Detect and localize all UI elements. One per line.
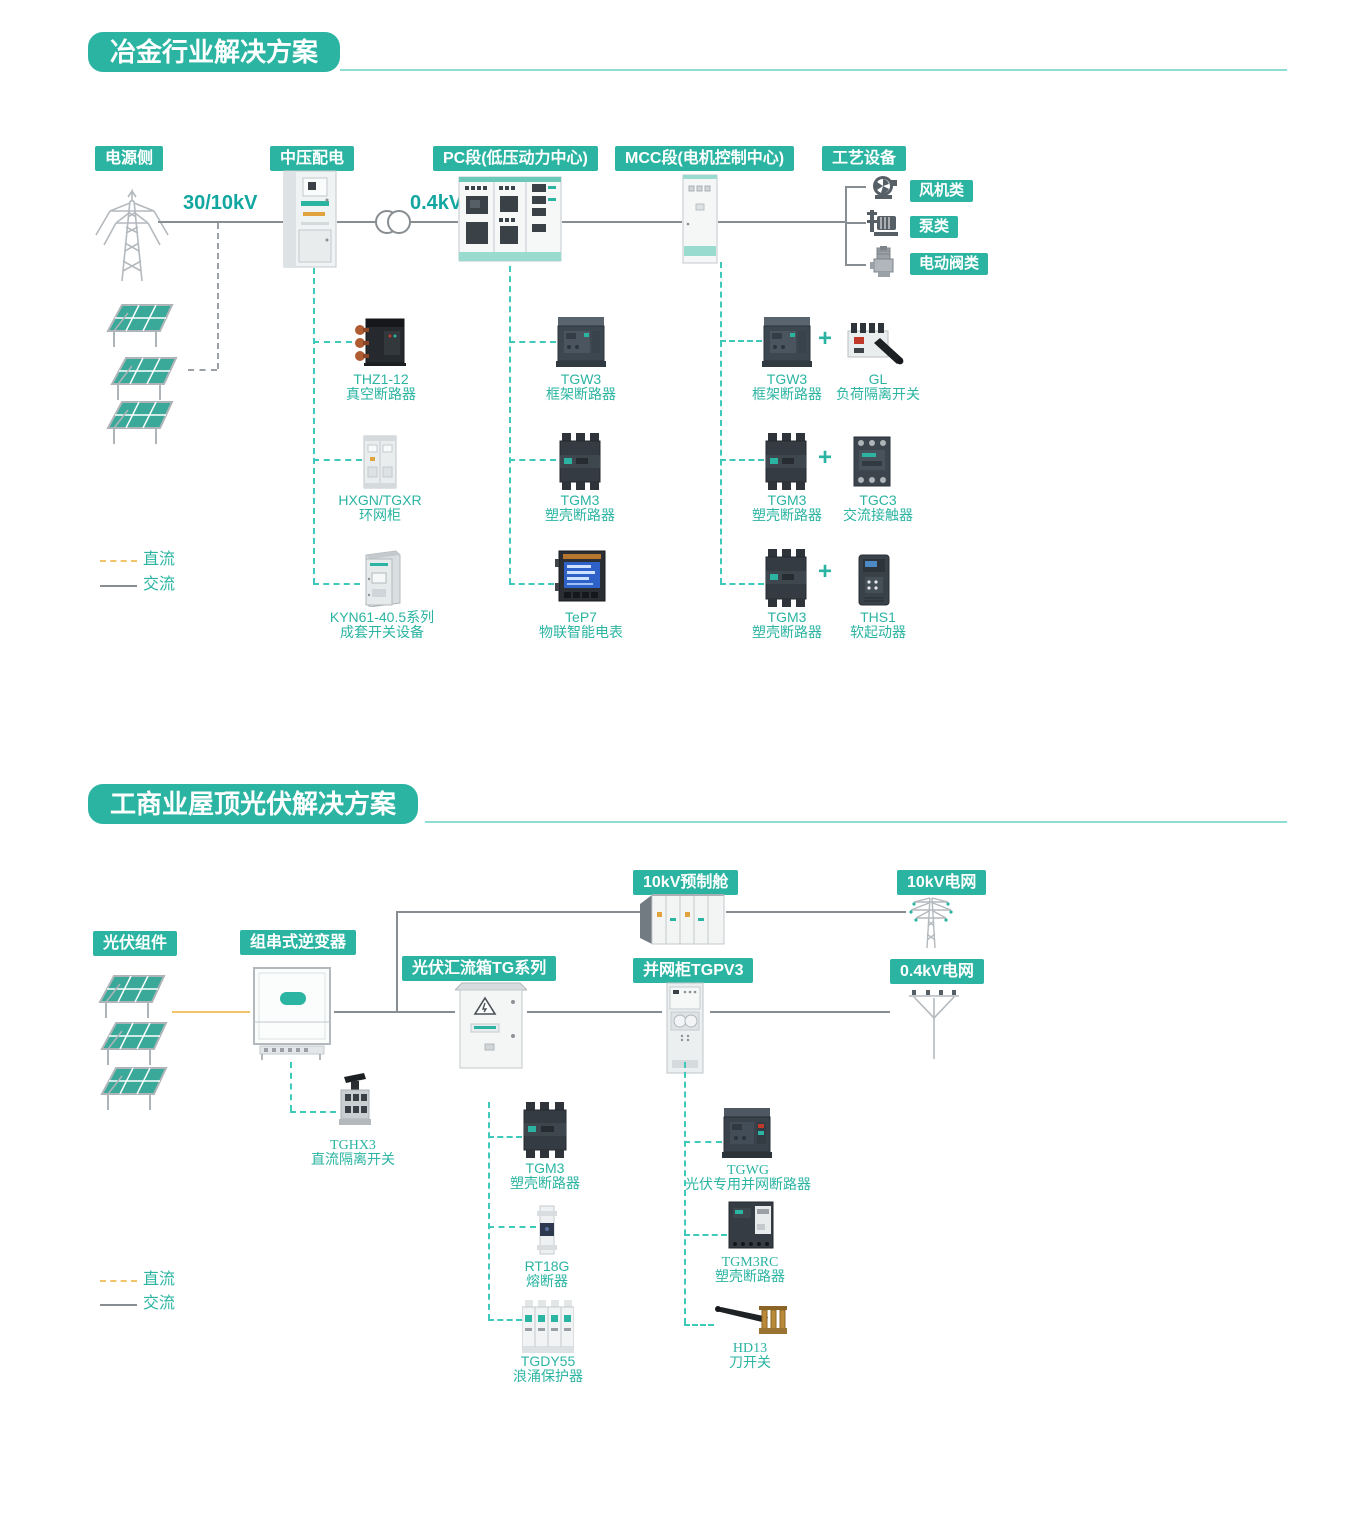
mv-branch-2 bbox=[313, 459, 362, 461]
solar-panel-icon bbox=[106, 303, 178, 349]
grid-cabinet-branch-3 bbox=[684, 1324, 714, 1326]
product-image-tgw3 bbox=[556, 317, 606, 367]
product-desc: 软起动器 bbox=[803, 625, 953, 640]
product-model: HXGN/TGXR bbox=[305, 493, 455, 508]
inverter-product-trunk bbox=[290, 1062, 292, 1111]
product-desc: 刀开关 bbox=[675, 1356, 825, 1371]
product-model: RT18G bbox=[472, 1259, 622, 1274]
mv-products-trunk bbox=[313, 268, 315, 584]
grid-cabinet-branch-2 bbox=[684, 1234, 727, 1236]
product-image-gl bbox=[846, 321, 904, 367]
voltage-low: 0.4kV bbox=[410, 192, 462, 215]
pc-branch-1 bbox=[509, 341, 556, 343]
section1-title-underline bbox=[340, 69, 1287, 71]
product-desc: 直流隔离开关 bbox=[278, 1153, 428, 1168]
equipment-branch-valve bbox=[845, 264, 866, 266]
transformer-icon bbox=[372, 207, 414, 237]
mv-branch-1 bbox=[313, 341, 352, 343]
combiner-branch-2 bbox=[488, 1226, 536, 1228]
solar-panel-icon bbox=[110, 356, 182, 402]
tag-power-side: 电源侧 bbox=[95, 146, 163, 171]
product-model: GL bbox=[803, 372, 953, 387]
product-label: TGM3 塑壳断路器 bbox=[505, 493, 655, 523]
product-desc: 塑壳断路器 bbox=[505, 508, 655, 523]
distribution-pole-icon bbox=[906, 984, 962, 1060]
equipment-branch-fan bbox=[845, 186, 866, 188]
mv-branch-3 bbox=[313, 583, 360, 585]
legend-dc-line bbox=[100, 1280, 137, 1282]
product-image-rt18g bbox=[536, 1204, 558, 1256]
product-desc: 负荷隔离开关 bbox=[803, 387, 953, 402]
tag-pc-section: PC段(低压动力中心) bbox=[433, 146, 598, 171]
legend-ac-line bbox=[100, 1304, 137, 1306]
connector-mcc-to-equipment bbox=[718, 221, 845, 223]
product-label: TGM3RC 塑壳断路器 bbox=[675, 1255, 825, 1285]
product-image-tgm3rc bbox=[727, 1200, 775, 1252]
legend-dc-label: 直流 bbox=[143, 1271, 175, 1289]
connector-cabin-to-10kv-grid bbox=[726, 911, 906, 913]
prefab-cabin-image bbox=[640, 892, 726, 948]
product-model: TGHX3 bbox=[278, 1138, 428, 1153]
product-model: TeP7 bbox=[506, 610, 656, 625]
product-label: TeP7 物联智能电表 bbox=[506, 610, 656, 640]
product-model: KYN61-40.5系列 bbox=[307, 610, 457, 625]
mcc-branch-2 bbox=[720, 459, 764, 461]
product-image-tep7 bbox=[554, 549, 608, 603]
mcc-products-trunk bbox=[720, 262, 722, 584]
product-model: TGWG bbox=[673, 1163, 823, 1178]
equipment-branch-pump bbox=[845, 222, 866, 224]
pump-icon bbox=[866, 208, 900, 238]
legend-dc-line bbox=[100, 560, 137, 562]
product-desc: 光伏专用并网断路器 bbox=[673, 1178, 823, 1193]
connector-pv-to-grid-line-h bbox=[188, 369, 217, 371]
product-desc: 框架断路器 bbox=[506, 387, 656, 402]
inverter-branch-1 bbox=[290, 1111, 336, 1113]
tag-mv-distribution: 中压配电 bbox=[270, 146, 354, 171]
section2-title-underline bbox=[425, 821, 1287, 823]
combiner-box-image bbox=[455, 980, 527, 1072]
solar-panel-icon bbox=[106, 400, 178, 446]
product-model: TGM3 bbox=[470, 1161, 620, 1176]
product-label: HXGN/TGXR 环网柜 bbox=[305, 493, 455, 523]
product-image-tgw3 bbox=[762, 317, 812, 367]
fan-icon bbox=[868, 174, 898, 201]
product-model: THS1 bbox=[803, 610, 953, 625]
string-inverter-image bbox=[250, 966, 334, 1062]
tag-valve-type: 电动阀类 bbox=[910, 253, 988, 275]
product-desc: 环网柜 bbox=[305, 508, 455, 523]
connector-pv-to-inverter-dc bbox=[172, 1011, 250, 1013]
connector-junction-vertical bbox=[396, 911, 398, 1012]
pc-branch-3 bbox=[509, 583, 554, 585]
product-image-tgm3 bbox=[764, 433, 808, 490]
tag-process-equipment: 工艺设备 bbox=[822, 146, 906, 171]
grid-tower-icon bbox=[908, 890, 954, 950]
connector-tower-to-mv bbox=[158, 221, 283, 223]
tag-string-inverter: 组串式逆变器 bbox=[240, 930, 356, 955]
tag-grid-04kv: 0.4kV电网 bbox=[890, 959, 984, 984]
plus-sign: + bbox=[818, 446, 832, 470]
product-image-ths1 bbox=[857, 553, 891, 607]
tag-grid-cabinet: 并网柜TGPV3 bbox=[633, 958, 753, 983]
product-label: TGDY55 浪涌保护器 bbox=[473, 1354, 623, 1384]
connector-pv-to-grid-line-v bbox=[217, 223, 219, 369]
connector-grid-cabinet-to-04kv bbox=[710, 1011, 890, 1013]
tag-combiner-box: 光伏汇流箱TG系列 bbox=[402, 956, 556, 981]
page-canvas: 冶金行业解决方案 电源侧 中压配电 PC段(低压动力中心) MCC段(电机控制中… bbox=[0, 0, 1350, 1528]
connector-inverter-to-combiner bbox=[334, 1011, 455, 1013]
mcc-cabinet-image bbox=[682, 174, 718, 264]
plus-sign: + bbox=[818, 327, 832, 351]
product-model: TGDY55 bbox=[473, 1354, 623, 1369]
product-image-tgc3 bbox=[850, 435, 894, 488]
connector-combiner-to-grid-cabinet bbox=[527, 1011, 662, 1013]
product-image-kyn61 bbox=[360, 549, 402, 607]
legend-ac-label: 交流 bbox=[143, 576, 175, 594]
grid-cabinet-branch-1 bbox=[684, 1141, 722, 1143]
product-label: TGHX3 直流隔离开关 bbox=[278, 1138, 428, 1168]
product-desc: 熔断器 bbox=[472, 1274, 622, 1289]
solar-panel-icon bbox=[100, 1021, 172, 1067]
product-desc: 真空断路器 bbox=[306, 387, 456, 402]
tag-pv-modules: 光伏组件 bbox=[93, 931, 177, 956]
combiner-branch-3 bbox=[488, 1319, 522, 1321]
product-desc: 塑壳断路器 bbox=[675, 1270, 825, 1285]
product-label: TGWG 光伏专用并网断路器 bbox=[673, 1163, 823, 1193]
solar-panel-icon bbox=[100, 1066, 172, 1112]
voltage-incoming: 30/10kV bbox=[183, 192, 258, 215]
product-model: TGM3 bbox=[505, 493, 655, 508]
plus-sign: + bbox=[818, 560, 832, 584]
section2-title: 工商业屋顶光伏解决方案 bbox=[88, 784, 418, 824]
tag-fan-type: 风机类 bbox=[910, 180, 973, 202]
connector-junction-to-cabin bbox=[396, 911, 640, 913]
product-image-tgdy55 bbox=[522, 1300, 574, 1354]
mv-cabinet-image bbox=[283, 170, 337, 268]
pc-branch-2 bbox=[509, 459, 556, 461]
product-label: TGW3 框架断路器 bbox=[506, 372, 656, 402]
section1-title: 冶金行业解决方案 bbox=[88, 32, 340, 72]
product-image-tgm3 bbox=[558, 433, 602, 490]
product-desc: 交流接触器 bbox=[803, 508, 953, 523]
product-model: TGW3 bbox=[506, 372, 656, 387]
product-model: HD13 bbox=[675, 1341, 825, 1356]
product-image-tgm3 bbox=[764, 549, 808, 607]
mcc-branch-1 bbox=[720, 340, 762, 342]
product-label: GL 负荷隔离开关 bbox=[803, 372, 953, 402]
product-label: TGC3 交流接触器 bbox=[803, 493, 953, 523]
product-label: KYN61-40.5系列 成套开关设备 bbox=[307, 610, 457, 640]
mcc-branch-3 bbox=[720, 583, 764, 585]
product-label: RT18G 熔断器 bbox=[472, 1259, 622, 1289]
product-model: TGM3RC bbox=[675, 1255, 825, 1270]
product-label: THZ1-12 真空断路器 bbox=[306, 372, 456, 402]
combiner-branch-1 bbox=[488, 1136, 522, 1138]
solar-panel-icon bbox=[98, 974, 170, 1020]
product-model: TGC3 bbox=[803, 493, 953, 508]
pc-products-trunk bbox=[509, 266, 511, 584]
product-image-tgm3 bbox=[522, 1102, 568, 1158]
product-image-thz1-12 bbox=[352, 317, 406, 367]
product-image-hd13 bbox=[714, 1302, 788, 1338]
legend-ac-line bbox=[100, 585, 137, 587]
product-desc: 成套开关设备 bbox=[307, 625, 457, 640]
product-desc: 塑壳断路器 bbox=[470, 1176, 620, 1191]
transmission-tower-icon bbox=[92, 183, 172, 283]
product-image-tghx3 bbox=[336, 1073, 374, 1127]
product-model: THZ1-12 bbox=[306, 372, 456, 387]
product-label: TGM3 塑壳断路器 bbox=[470, 1161, 620, 1191]
equipment-bracket bbox=[845, 186, 847, 264]
grid-cabinet-image bbox=[666, 982, 704, 1074]
product-desc: 物联智能电表 bbox=[506, 625, 656, 640]
valve-icon bbox=[868, 246, 898, 278]
legend-dc-label: 直流 bbox=[143, 551, 175, 569]
product-desc: 浪涌保护器 bbox=[473, 1369, 623, 1384]
product-label: HD13 刀开关 bbox=[675, 1341, 825, 1371]
tag-pump-type: 泵类 bbox=[910, 216, 958, 238]
tag-mcc-section: MCC段(电机控制中心) bbox=[615, 146, 794, 171]
product-image-tgwg bbox=[722, 1106, 772, 1160]
product-image-hxgn bbox=[363, 435, 397, 489]
product-label: THS1 软起动器 bbox=[803, 610, 953, 640]
pc-cabinet-image bbox=[458, 172, 562, 266]
legend-ac-label: 交流 bbox=[143, 1295, 175, 1313]
connector-pc-to-mcc bbox=[562, 221, 682, 223]
